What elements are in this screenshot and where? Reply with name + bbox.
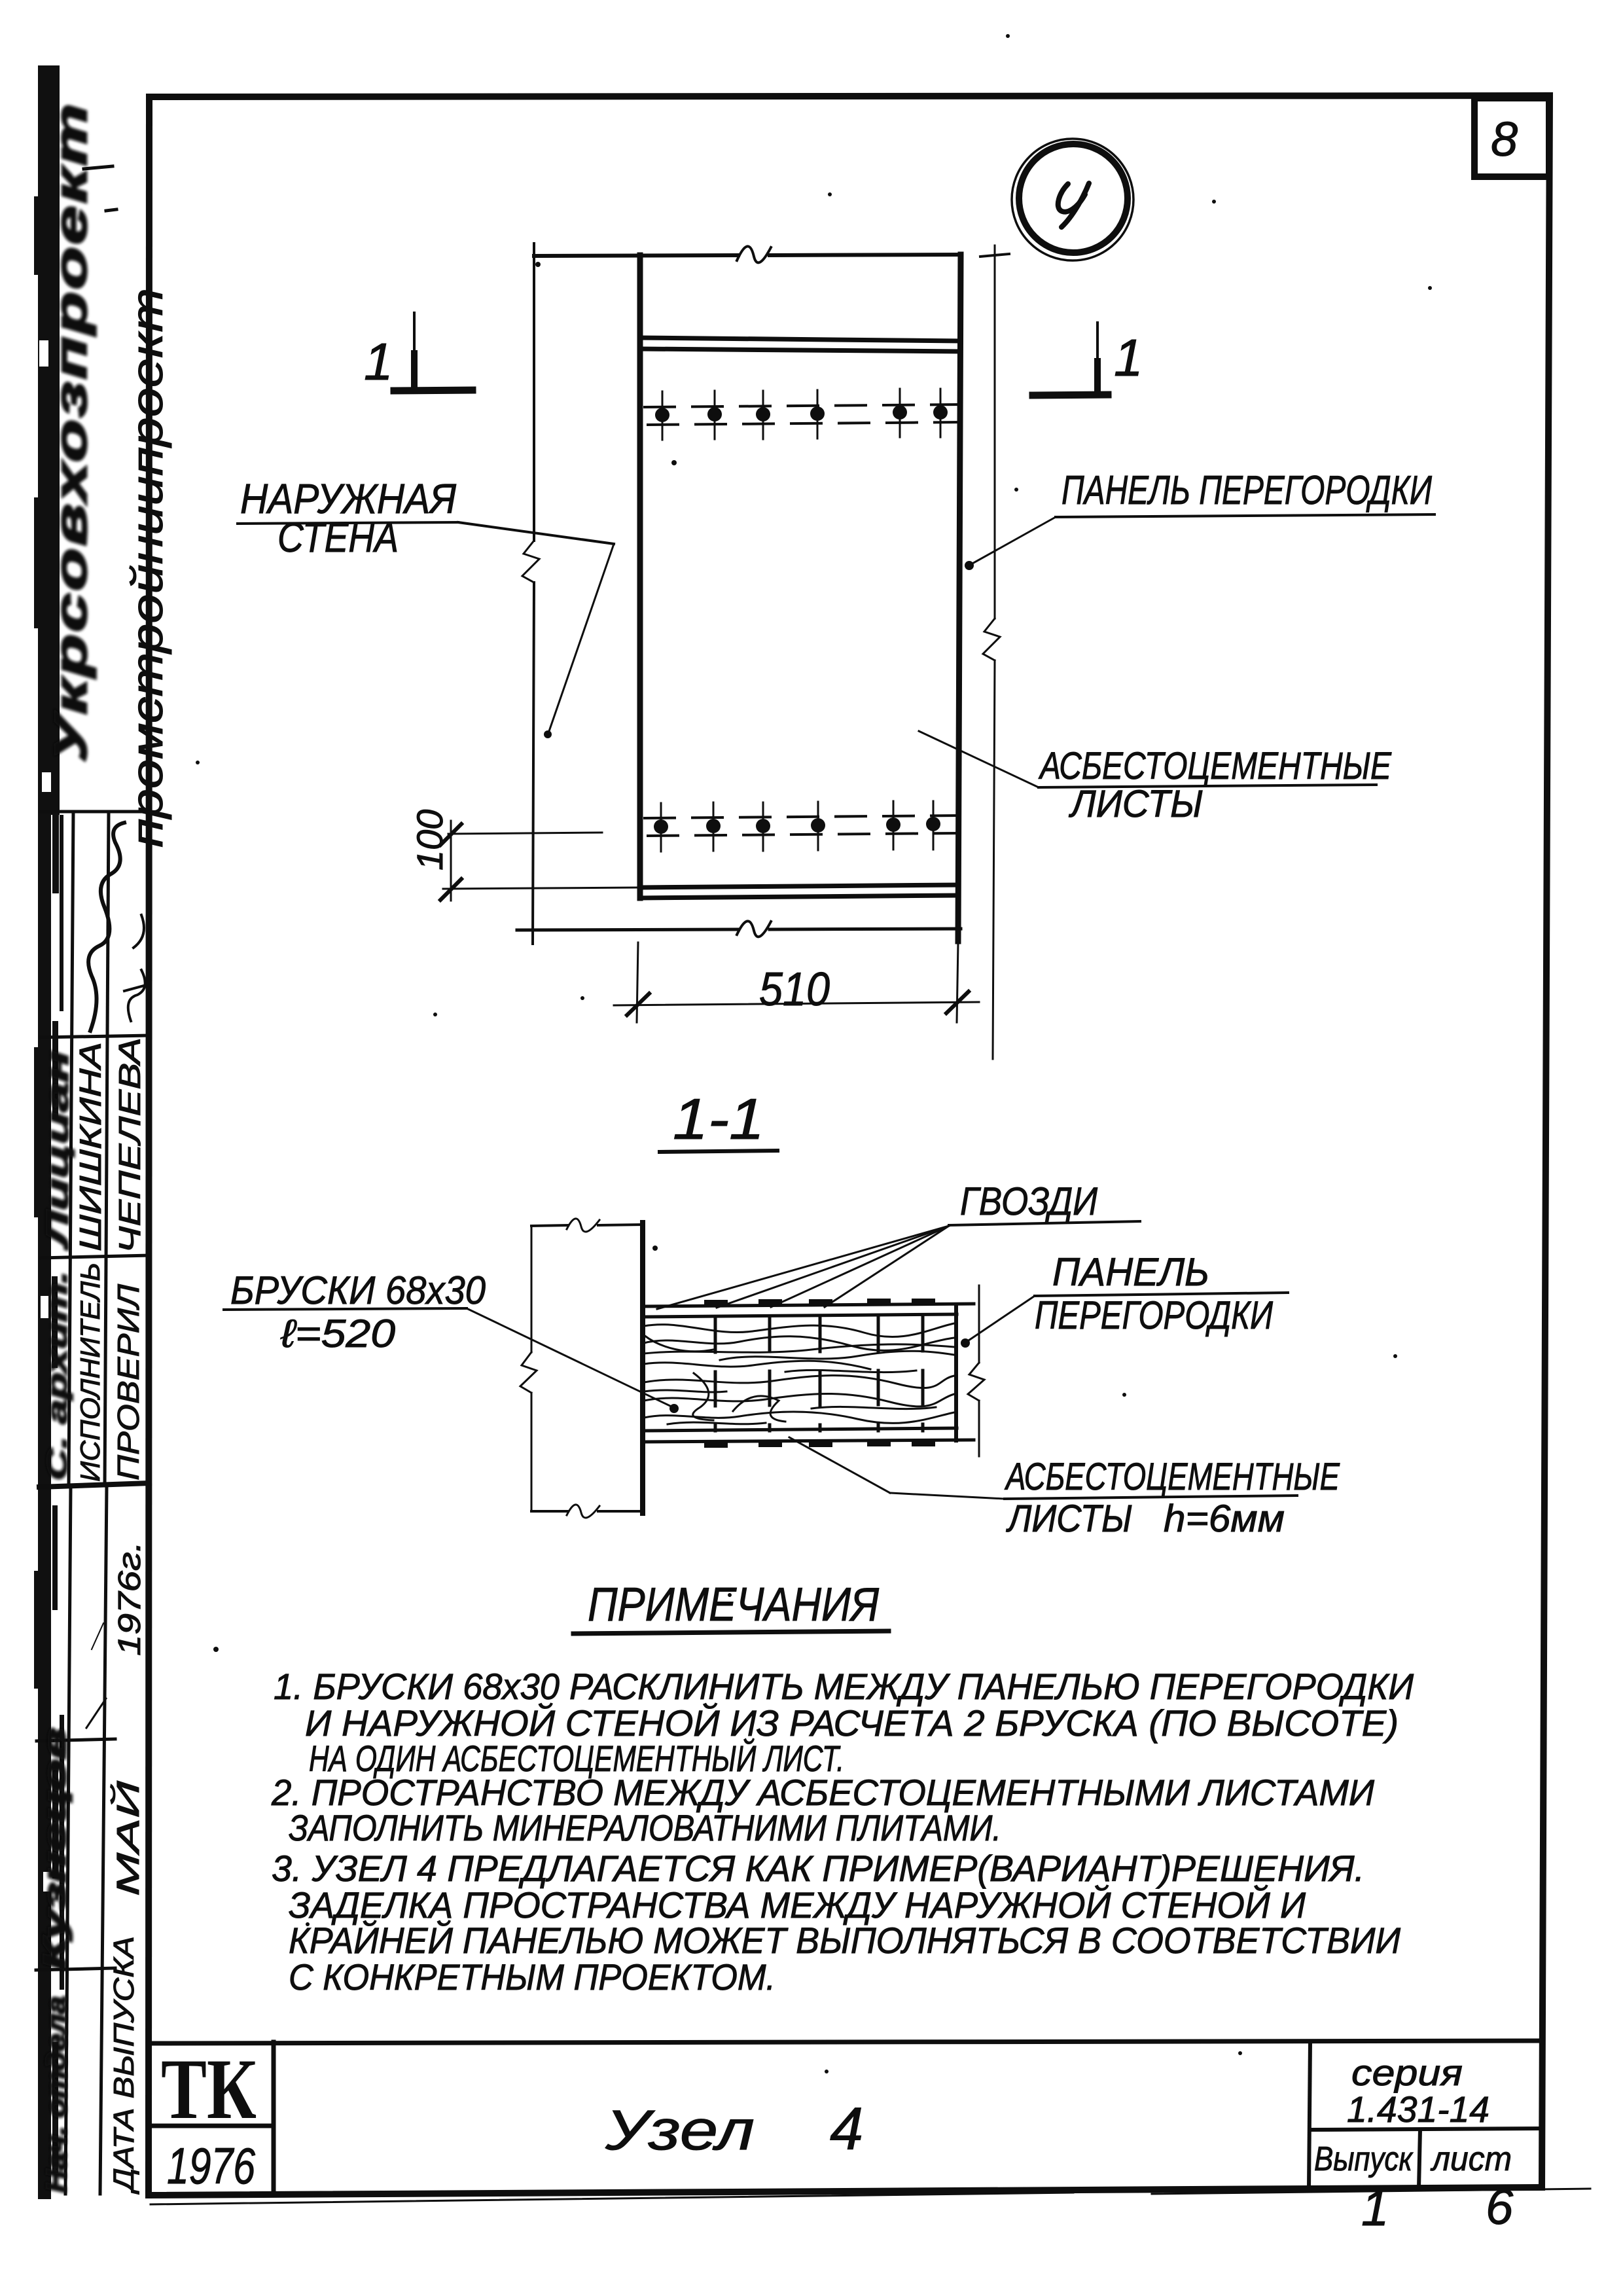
svg-text:1-1: 1-1 xyxy=(673,1086,764,1151)
svg-text:ПЕРЕГОРОДКИ: ПЕРЕГОРОДКИ xyxy=(1035,1293,1273,1337)
svg-text:100: 100 xyxy=(409,810,450,870)
svg-text:Укрсовхозпроект: Укрсовхозпроект xyxy=(45,101,96,762)
svg-text:ПАНЕЛЬ: ПАНЕЛЬ xyxy=(1052,1250,1209,1294)
svg-text:ДАТА ВЫПУСКА: ДАТА ВЫПУСКА xyxy=(108,1936,140,2195)
svg-text:1. БРУСКИ 68х30 РАСКЛИНИТЬ МЕЖ: 1. БРУСКИ 68х30 РАСКЛИНИТЬ МЕЖДУ ПАНЕЛЬЮ… xyxy=(274,1666,1414,1707)
svg-text:4: 4 xyxy=(830,2096,863,2162)
svg-text:ЗАПОЛНИТЬ МИНЕРАЛОВАТНИМИ ПЛИТ: ЗАПОЛНИТЬ МИНЕРАЛОВАТНИМИ ПЛИТАМИ. xyxy=(289,1807,1001,1848)
svg-text:МАЙ: МАЙ xyxy=(110,1780,146,1896)
svg-text:ЧЕПЕЛЕВА: ЧЕПЕЛЕВА xyxy=(113,1037,147,1253)
svg-text:СТЕНА: СТЕНА xyxy=(277,514,399,561)
svg-text:лист: лист xyxy=(1430,2140,1512,2178)
svg-text:АСБЕСТОЦЕМЕНТНЫЕ: АСБЕСТОЦЕМЕНТНЫЕ xyxy=(1039,745,1393,787)
svg-text:1: 1 xyxy=(1361,2181,1389,2236)
svg-text:серия: серия xyxy=(1351,2052,1463,2093)
svg-text:АСБЕСТОЦЕМЕНТНЫЕ: АСБЕСТОЦЕМЕНТНЫЕ xyxy=(1005,1456,1340,1498)
svg-text:Кузнецов: Кузнецов xyxy=(38,1728,73,1970)
svg-text:1: 1 xyxy=(1114,329,1143,387)
svg-text:1976г.: 1976г. xyxy=(113,1541,147,1656)
svg-text:ПРИМЕЧАНИЯ: ПРИМЕЧАНИЯ xyxy=(588,1579,880,1631)
svg-text:510: 510 xyxy=(759,963,830,1016)
svg-text:Узел: Узел xyxy=(605,2099,755,2162)
svg-text:С КОНКРЕТНЫМ ПРОЕКТОМ.: С КОНКРЕТНЫМ ПРОЕКТОМ. xyxy=(289,1956,776,1998)
svg-text:ЛИСТЫ: ЛИСТЫ xyxy=(1068,783,1203,825)
svg-text:6: 6 xyxy=(1486,2179,1514,2235)
svg-text:8: 8 xyxy=(1491,112,1518,166)
svg-text:Нач. отдела: Нач. отдела xyxy=(41,1996,71,2193)
svg-text:ШИШКИНА: ШИШКИНА xyxy=(73,1042,107,1251)
svg-text:Лициан: Лициан xyxy=(41,1050,75,1250)
svg-text:КРАЙНЕЙ ПАНЕЛЬЮ МОЖЕТ ВЫПОЛНЯТ: КРАЙНЕЙ ПАНЕЛЬЮ МОЖЕТ ВЫПОЛНЯТЬСЯ В СООТ… xyxy=(289,1920,1401,1961)
svg-text:ГВОЗДИ: ГВОЗДИ xyxy=(960,1179,1097,1223)
svg-text:Выпуск: Выпуск xyxy=(1314,2140,1414,2178)
svg-text:БРУСКИ 68х30: БРУСКИ 68х30 xyxy=(230,1268,486,1312)
svg-text:ПРОВЕРИЛ: ПРОВЕРИЛ xyxy=(111,1283,145,1480)
svg-text:1: 1 xyxy=(364,332,393,391)
svg-text:ℓ=520: ℓ=520 xyxy=(280,1312,395,1355)
svg-text:ЛИСТЫ: ЛИСТЫ xyxy=(1005,1498,1132,1540)
svg-text:С. архит.: С. архит. xyxy=(41,1271,73,1480)
svg-text:1976: 1976 xyxy=(167,2137,255,2195)
svg-text:промстройниипроект: промстройниипроект xyxy=(122,288,172,848)
svg-text:ПАНЕЛЬ ПЕРЕГОРОДКИ: ПАНЕЛЬ ПЕРЕГОРОДКИ xyxy=(1061,468,1433,513)
svg-text:ТК: ТК xyxy=(161,2041,257,2137)
svg-text:h=6мм: h=6мм xyxy=(1164,1498,1285,1540)
svg-text:ИСПОЛНИТЕЛЬ: ИСПОЛНИТЕЛЬ xyxy=(75,1263,105,1482)
svg-text:1.431-14: 1.431-14 xyxy=(1347,2089,1489,2130)
svg-text:3. УЗЕЛ 4 ПРЕДЛАГАЕТСЯ КАК ПРИ: 3. УЗЕЛ 4 ПРЕДЛАГАЕТСЯ КАК ПРИМЕР(ВАРИАН… xyxy=(272,1848,1364,1889)
